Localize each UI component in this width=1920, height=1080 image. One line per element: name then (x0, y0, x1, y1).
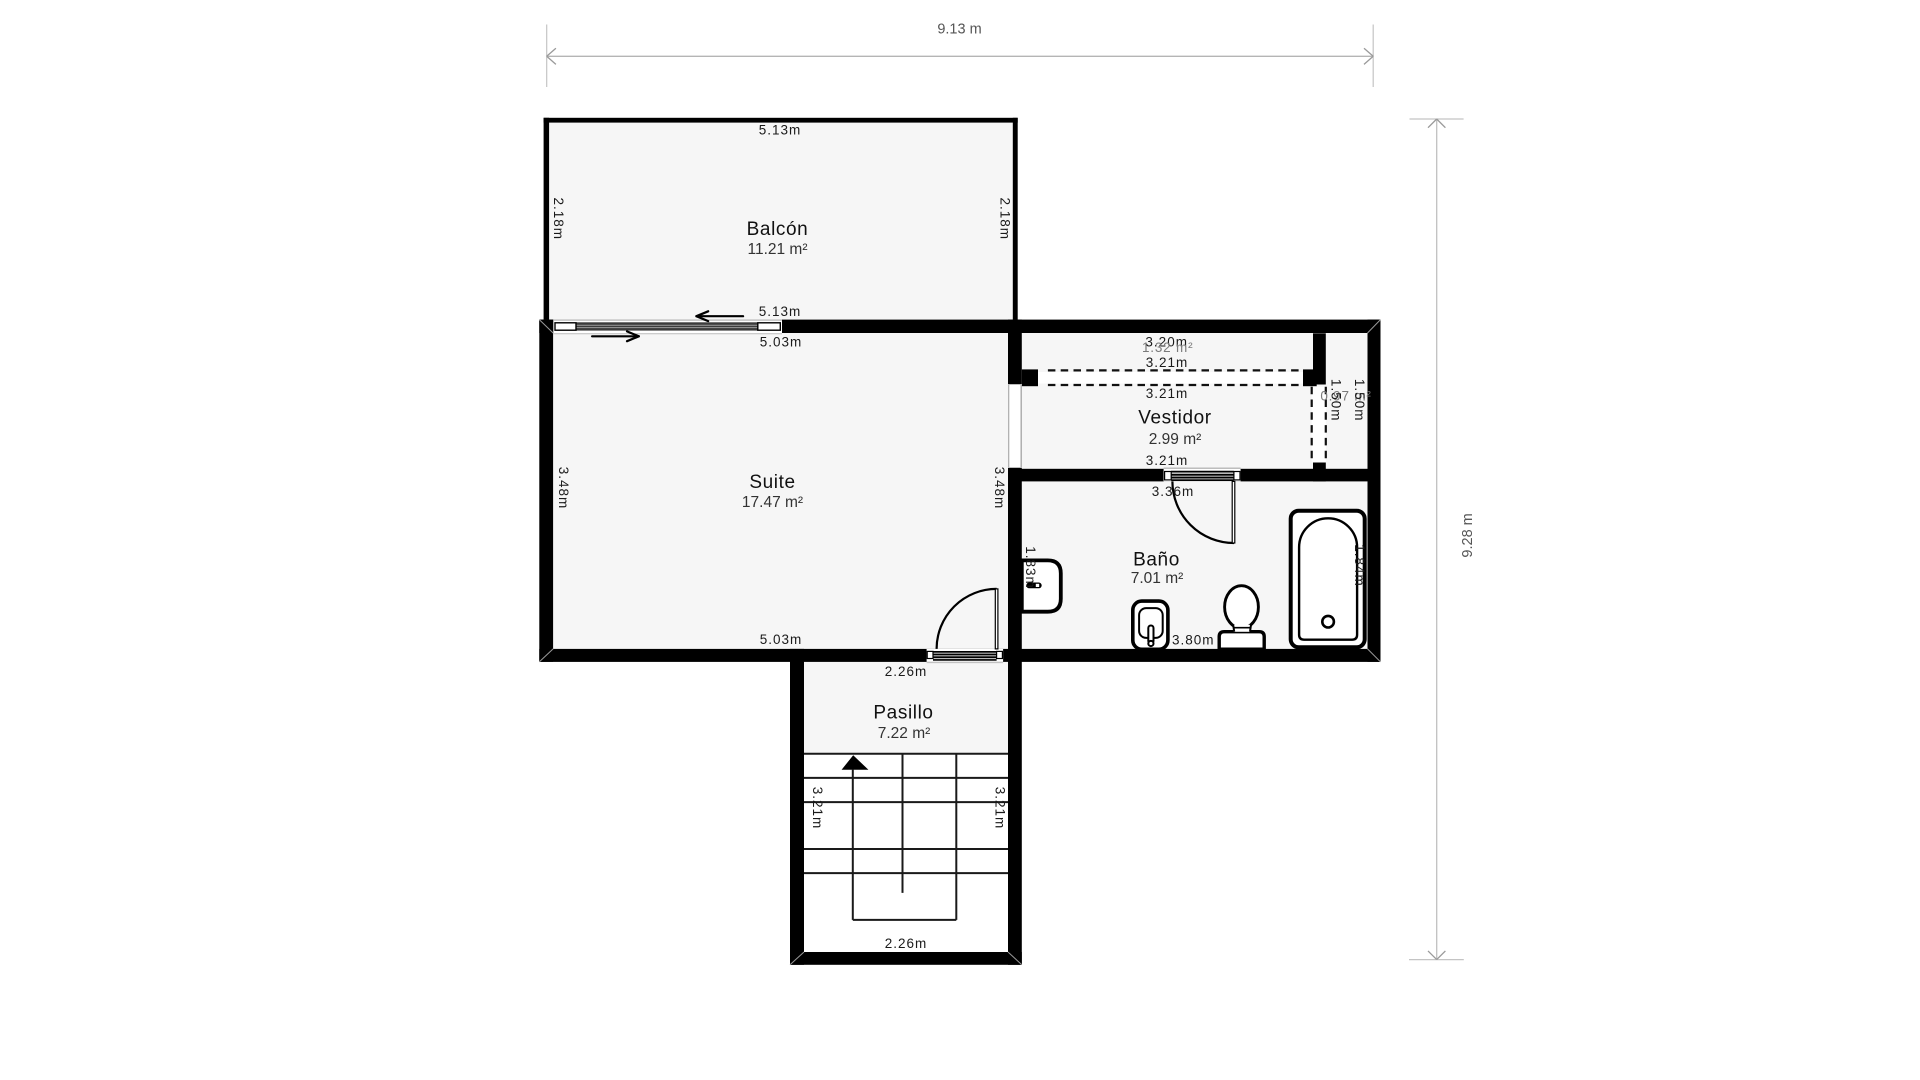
svg-text:Pasillo: Pasillo (873, 702, 933, 723)
svg-text:2.99 m²: 2.99 m² (1149, 431, 1202, 448)
svg-text:3.21m: 3.21m (1146, 386, 1189, 401)
svg-text:Vestidor: Vestidor (1138, 407, 1212, 428)
svg-text:17.47 m²: 17.47 m² (742, 494, 803, 511)
svg-text:1.32 m²: 1.32 m² (1142, 340, 1193, 355)
svg-text:3.21m: 3.21m (992, 787, 1007, 830)
svg-text:3.36m: 3.36m (1152, 484, 1195, 499)
svg-text:2.18m: 2.18m (997, 198, 1012, 241)
svg-text:1.50m: 1.50m (1352, 379, 1367, 422)
svg-text:1.84m: 1.84m (1352, 544, 1367, 587)
svg-text:2.26m: 2.26m (885, 936, 928, 951)
svg-text:Suite: Suite (749, 472, 795, 493)
svg-text:3.21m: 3.21m (1146, 355, 1189, 370)
svg-text:1.50m: 1.50m (1329, 379, 1344, 422)
svg-text:9.28 m: 9.28 m (1460, 513, 1476, 557)
svg-text:7.01 m²: 7.01 m² (1131, 570, 1184, 587)
svg-text:2.18m: 2.18m (551, 198, 566, 241)
svg-text:5.13m: 5.13m (759, 123, 802, 138)
svg-text:7.22 m²: 7.22 m² (878, 725, 931, 742)
svg-text:3.48m: 3.48m (556, 467, 571, 510)
svg-text:5.03m: 5.03m (760, 335, 803, 350)
svg-text:3.21m: 3.21m (1146, 453, 1189, 468)
svg-text:3.21m: 3.21m (810, 787, 825, 830)
svg-text:9.13 m: 9.13 m (937, 22, 981, 38)
svg-text:5.03m: 5.03m (760, 632, 803, 647)
svg-text:3.48m: 3.48m (992, 467, 1007, 510)
svg-text:5.13m: 5.13m (759, 304, 802, 319)
svg-text:Baño: Baño (1133, 549, 1180, 570)
svg-text:1.83m: 1.83m (1023, 546, 1038, 589)
svg-text:11.21 m²: 11.21 m² (747, 241, 807, 258)
svg-text:2.26m: 2.26m (885, 664, 928, 679)
svg-text:Balcón: Balcón (747, 219, 809, 240)
svg-text:3.80m: 3.80m (1172, 633, 1215, 648)
